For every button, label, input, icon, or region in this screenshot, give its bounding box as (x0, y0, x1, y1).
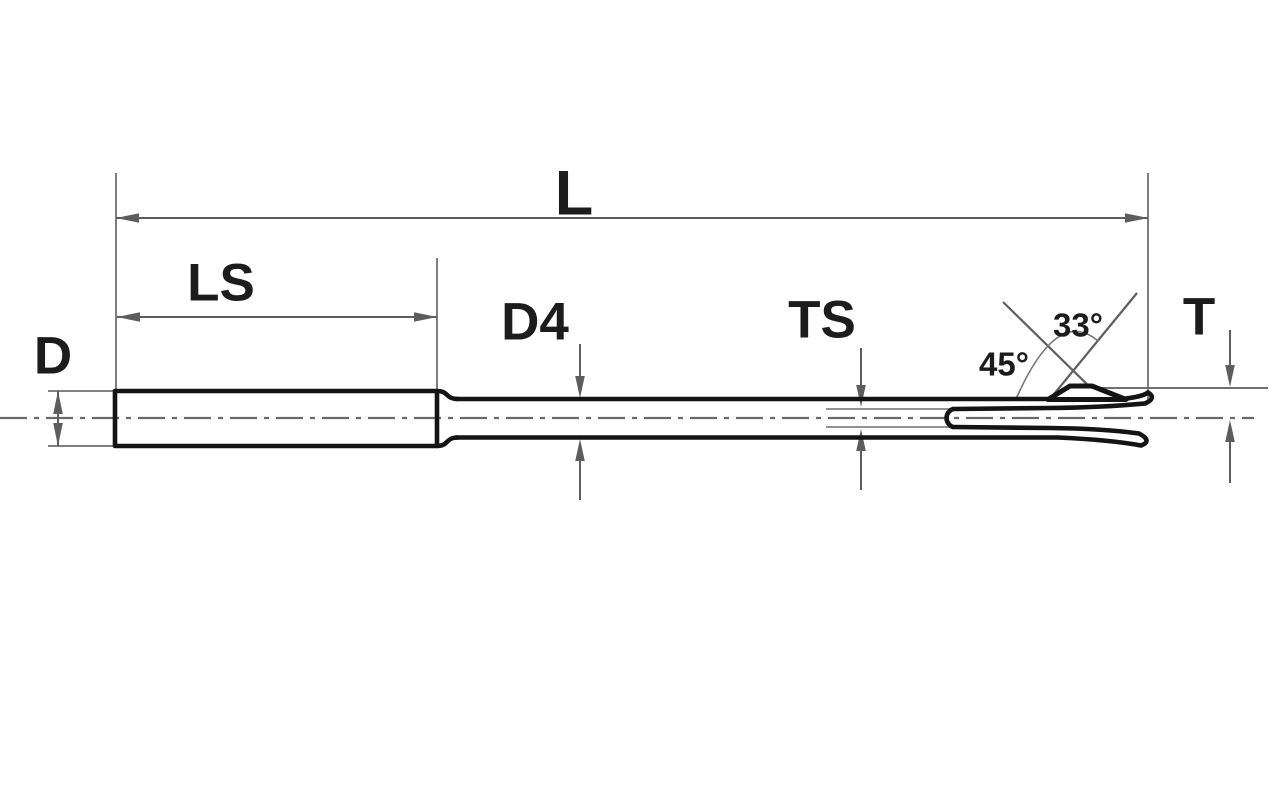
label-shank-diameter: D (34, 330, 72, 383)
arrow-D4-up (575, 439, 585, 461)
arrow-D4-down (575, 376, 585, 398)
arrow-LS-left (117, 312, 140, 322)
arrow-T-down (1225, 365, 1235, 387)
lower-prong (456, 427, 1147, 446)
arrow-D-down (53, 423, 63, 446)
engineering-drawing: L LS D D4 TS T 33° 45° (0, 0, 1280, 807)
arrow-L-right (1125, 213, 1148, 223)
arrow-TS-up (856, 429, 866, 451)
label-angle-33: 33° (1053, 309, 1103, 342)
slot-end-radius (947, 409, 953, 427)
arrow-T-up (1225, 420, 1235, 442)
label-shaft-diameter: D4 (501, 296, 569, 349)
arrow-D-up (53, 391, 63, 414)
label-slot-thickness: TS (788, 294, 856, 347)
label-angle-45: 45° (979, 348, 1029, 381)
label-tip-height: T (1183, 291, 1215, 344)
arrow-LS-right (414, 312, 437, 322)
label-overall-length: L (555, 163, 593, 226)
label-shank-length: LS (187, 257, 255, 310)
arrow-TS-down (856, 385, 866, 407)
arrow-L-left (116, 213, 139, 223)
drawing-canvas (0, 0, 1280, 807)
